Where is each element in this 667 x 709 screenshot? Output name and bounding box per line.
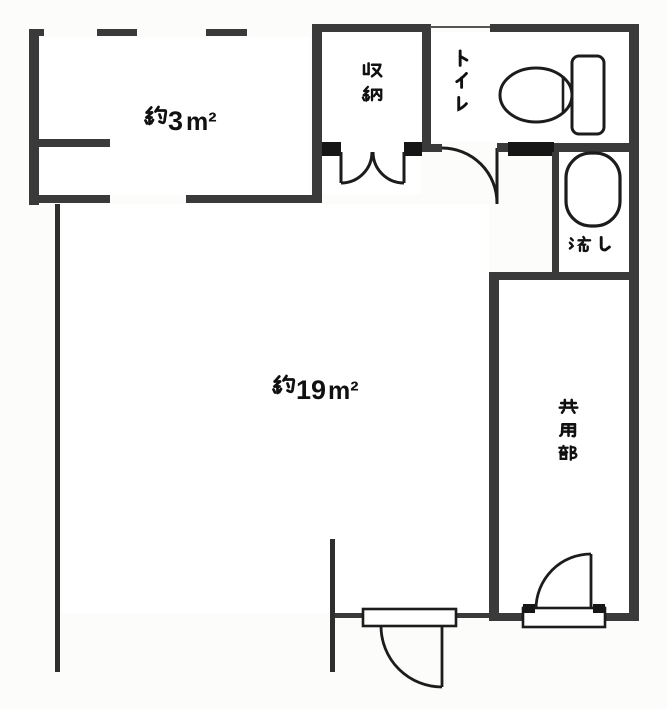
svg-text:3: 3 [168, 106, 183, 136]
svg-text:19: 19 [296, 375, 326, 405]
svg-text:m²: m² [328, 377, 359, 405]
svg-text:m²: m² [186, 108, 217, 136]
